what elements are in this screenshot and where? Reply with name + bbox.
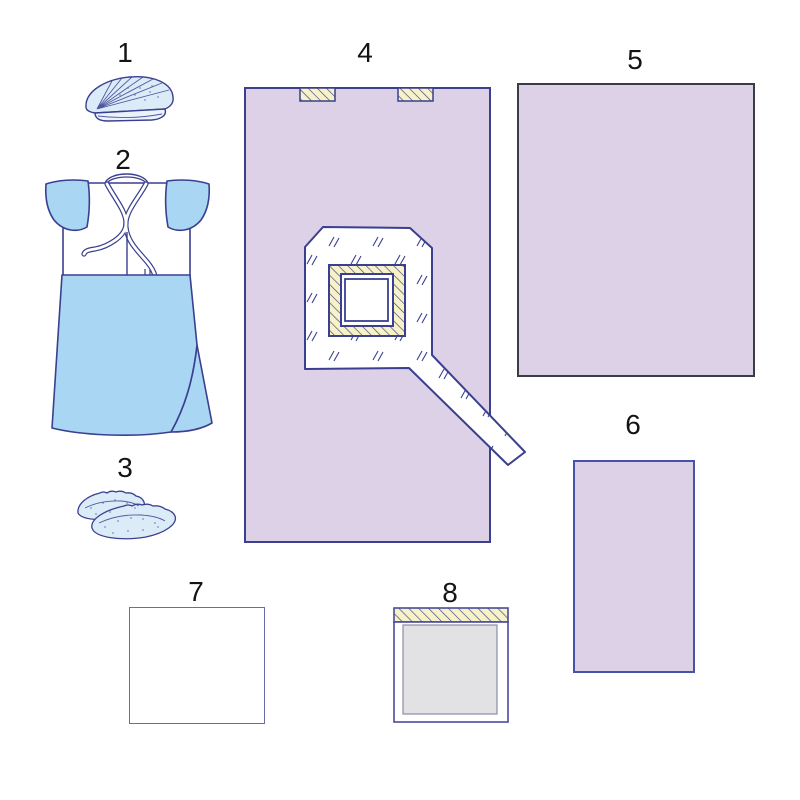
item-number-7: 7 — [188, 578, 204, 606]
adhesive-pad-figure — [388, 598, 516, 730]
surgical-gown-figure — [30, 165, 225, 440]
gown-skirt — [52, 275, 197, 435]
fenestration-window — [345, 279, 388, 321]
surgical-pack-diagram: 1 2 3 4 5 6 7 8 — [0, 0, 800, 800]
large-drape-sheet — [517, 83, 755, 377]
item-number-6: 6 — [625, 411, 641, 439]
item-number-5: 5 — [627, 46, 643, 74]
fenestrated-drape-figure — [235, 80, 535, 555]
small-drape-sheet — [573, 460, 695, 673]
item-number-3: 3 — [117, 454, 133, 482]
shoe-covers-figure — [63, 483, 191, 551]
gown-neck-loop — [105, 174, 148, 183]
white-sheet — [129, 607, 265, 724]
item-number-4: 4 — [357, 39, 373, 67]
pad-absorbent-area — [403, 625, 497, 714]
bouffant-cap-figure — [80, 70, 180, 128]
pad-adhesive-strip — [394, 608, 508, 622]
item-number-1: 1 — [117, 39, 133, 67]
